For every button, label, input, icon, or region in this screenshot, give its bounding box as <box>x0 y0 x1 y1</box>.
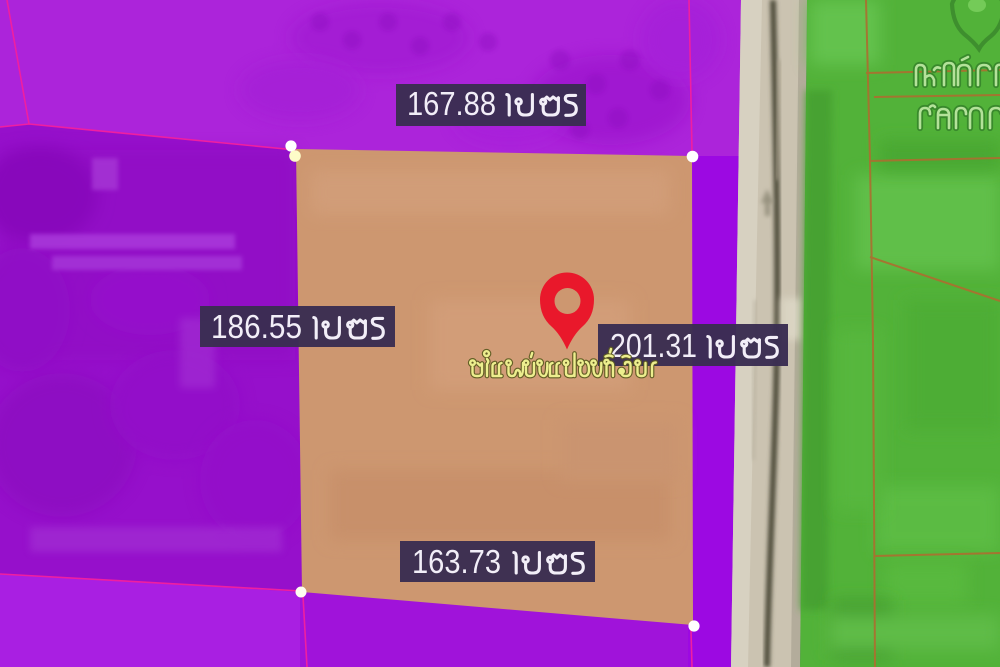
svg-text:186.55: 186.55 <box>211 308 302 345</box>
svg-text:167.88: 167.88 <box>407 85 496 122</box>
svg-text:163.73: 163.73 <box>412 543 501 580</box>
